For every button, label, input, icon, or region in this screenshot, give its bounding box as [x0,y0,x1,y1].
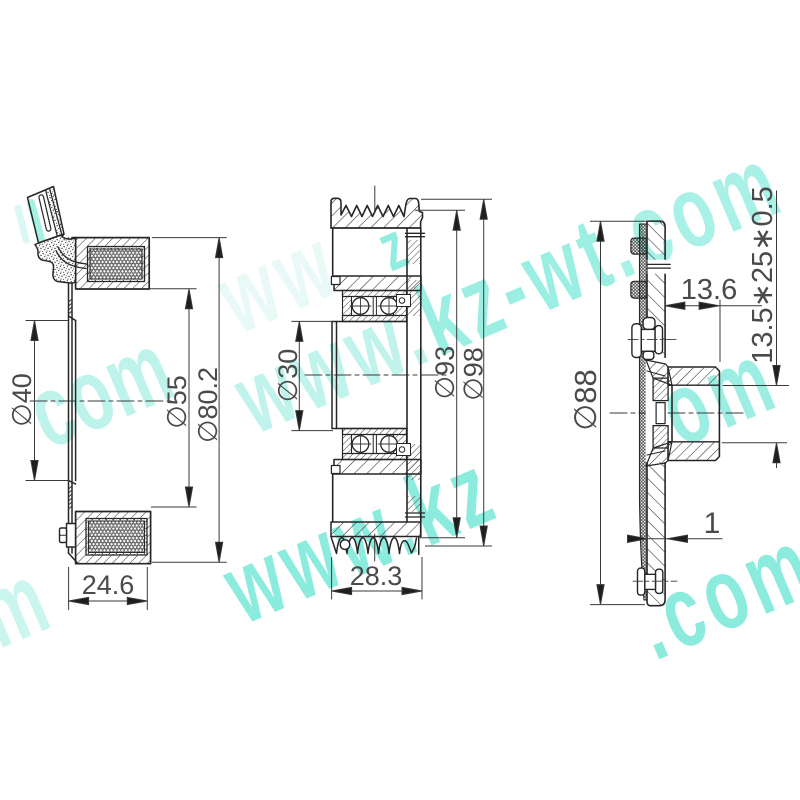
svg-text:13.6: 13.6 [681,274,737,306]
svg-text:∅93: ∅93 [430,346,460,400]
svg-text:∅98: ∅98 [459,347,489,401]
svg-text:∅88: ∅88 [568,369,603,431]
svg-text:1: 1 [704,507,721,540]
svg-text:∅80.2: ∅80.2 [193,367,223,443]
svg-text:13.5∗25∗0.5: 13.5∗25∗0.5 [747,186,779,364]
svg-text:28.3: 28.3 [350,561,403,591]
svg-text:∅55: ∅55 [162,375,192,429]
svg-text:∅40: ∅40 [7,373,37,427]
svg-text:∅30: ∅30 [273,349,303,403]
svg-text:24.6: 24.6 [82,570,135,600]
